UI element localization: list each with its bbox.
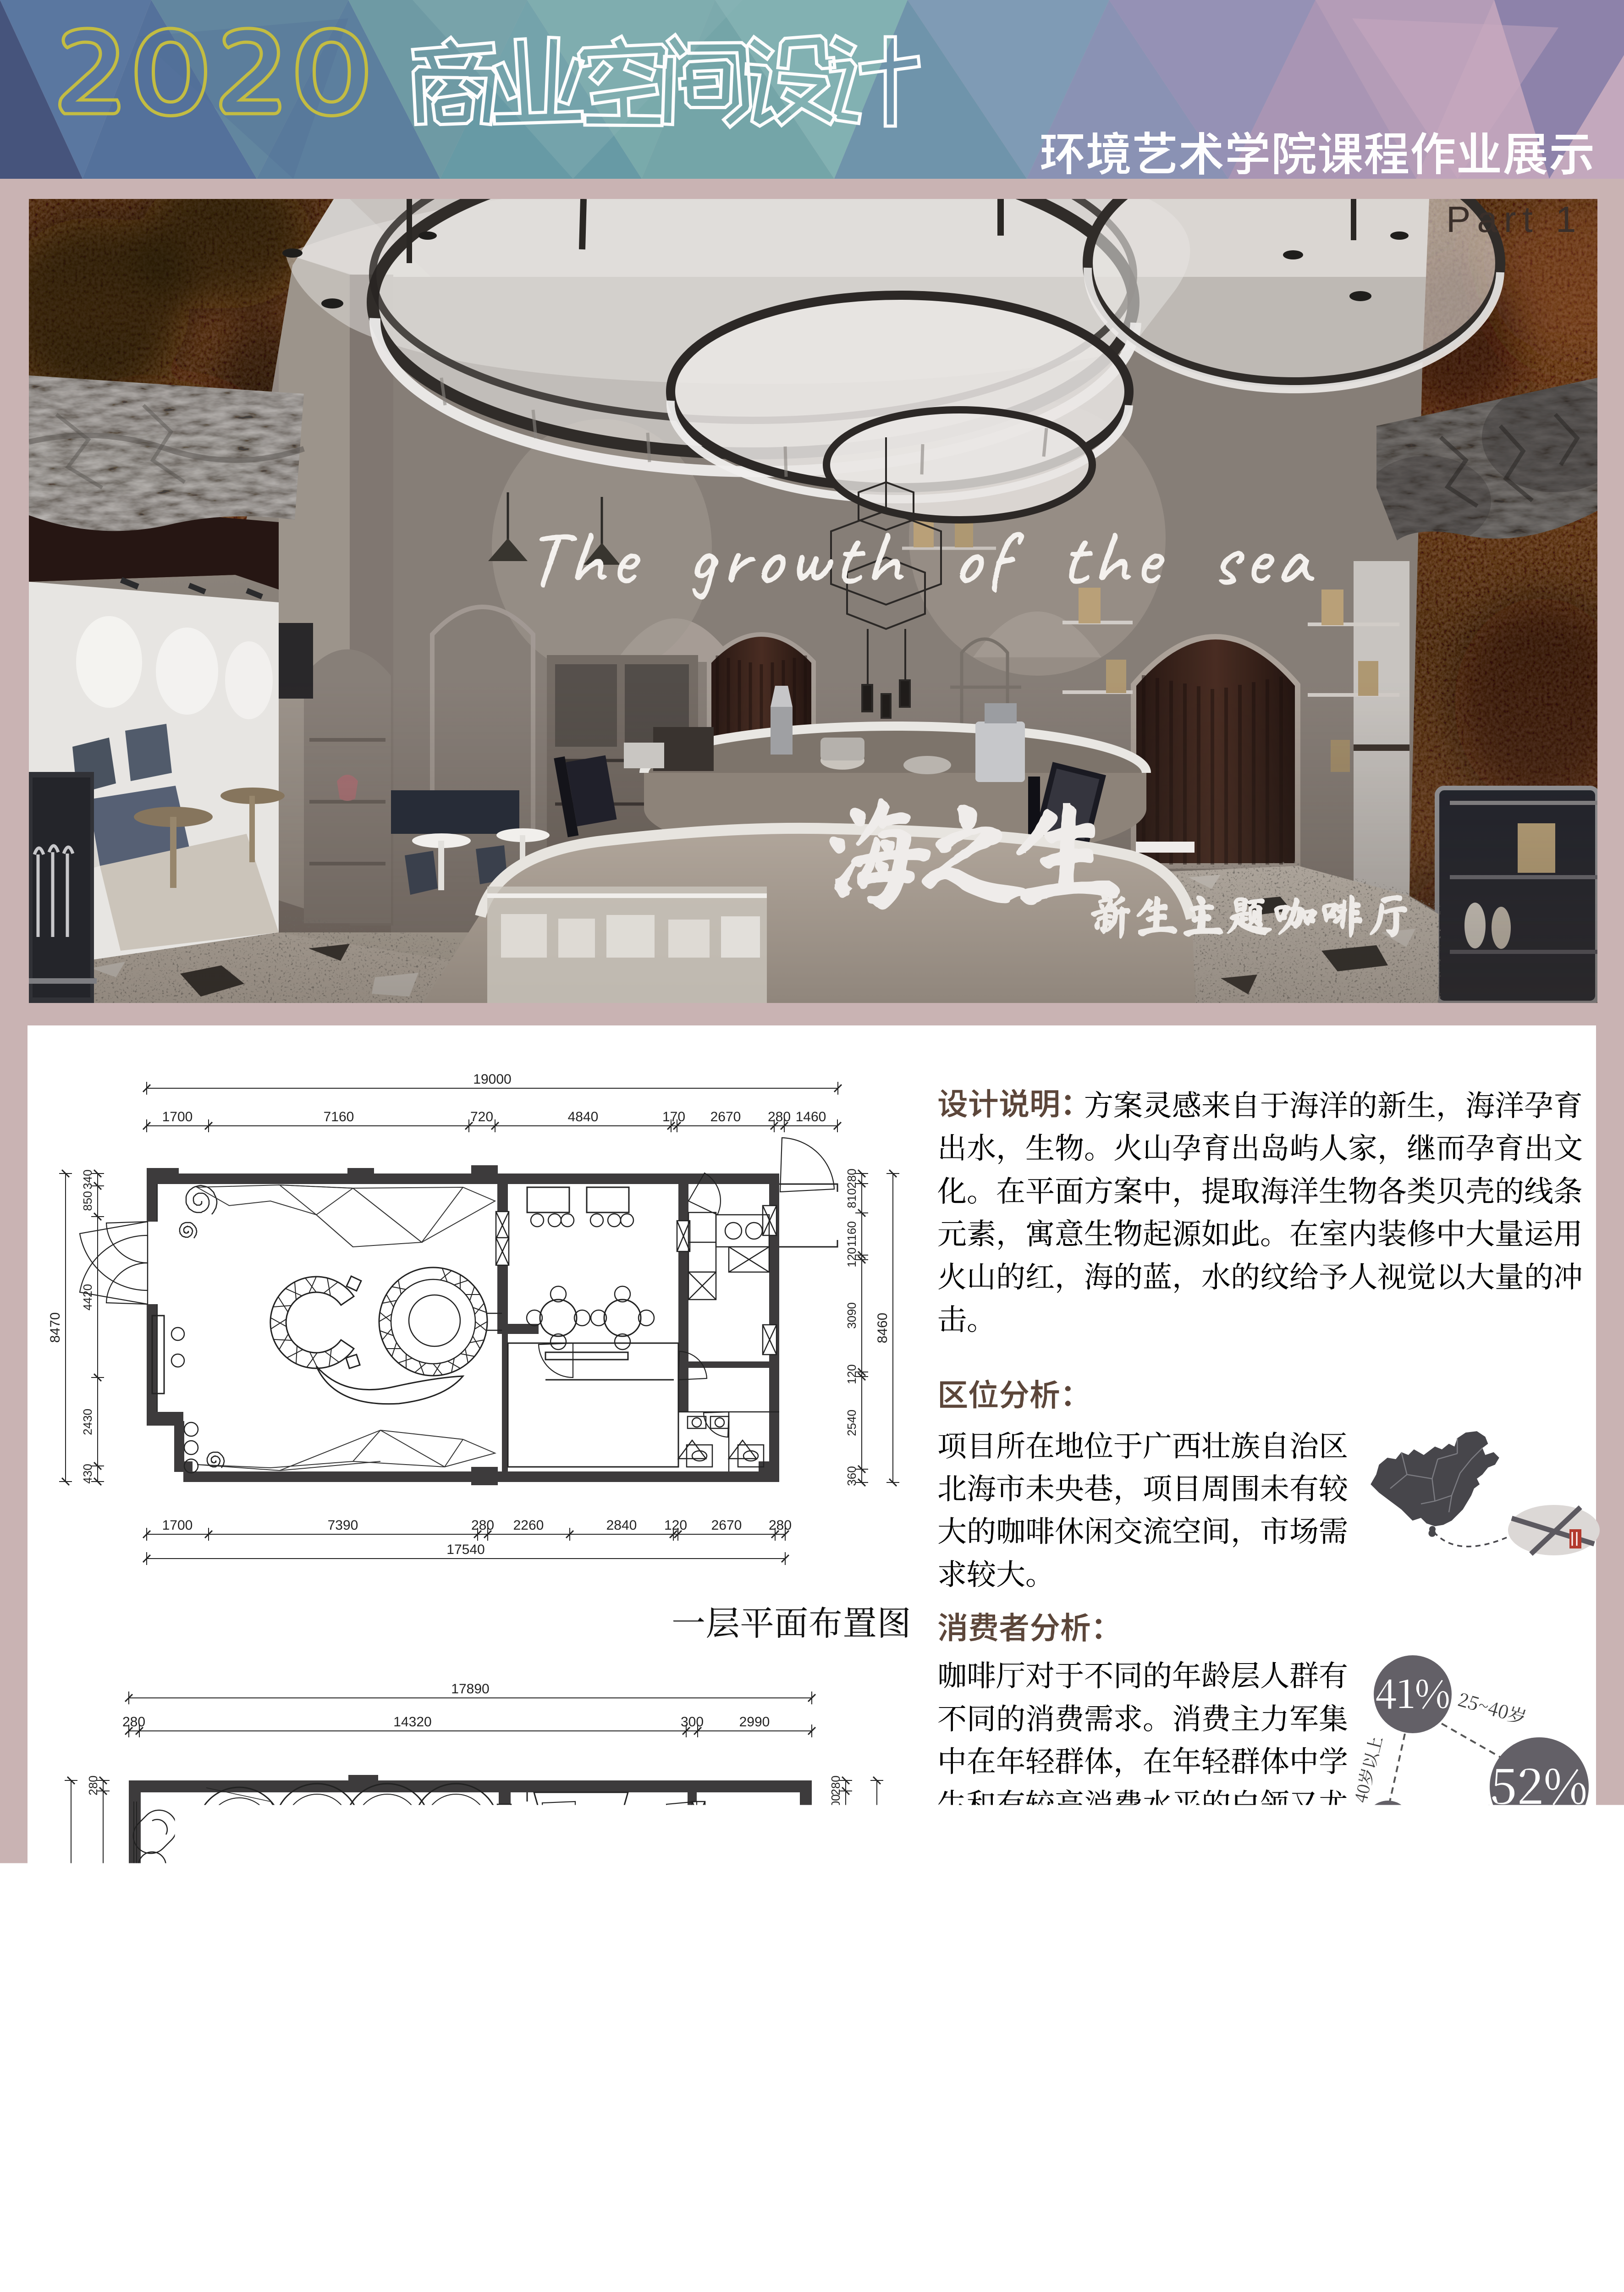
svg-text:8460: 8460: [875, 1313, 890, 1344]
svg-text:280: 280: [768, 1109, 791, 1124]
svg-text:170: 170: [662, 1109, 685, 1124]
svg-text:280: 280: [845, 1168, 859, 1188]
svg-text:720: 720: [470, 1109, 493, 1124]
svg-text:7390: 7390: [328, 1518, 358, 1533]
svg-text:17890: 17890: [451, 1681, 489, 1697]
svg-text:280: 280: [86, 1775, 100, 1795]
svg-text:1160: 1160: [845, 1221, 859, 1247]
svg-text:430: 430: [81, 1464, 94, 1483]
svg-text:8470: 8470: [48, 1312, 63, 1343]
svg-text:8460: 8460: [859, 1928, 874, 1959]
svg-text:19000: 19000: [473, 1072, 511, 1087]
svg-text:2540: 2540: [845, 1410, 859, 1436]
svg-text:4420: 4420: [81, 1284, 94, 1311]
svg-text:120: 120: [845, 1364, 859, 1384]
svg-text:7940: 7940: [634, 2138, 665, 2153]
svg-text:280: 280: [122, 2138, 145, 2153]
svg-text:300: 300: [681, 1714, 704, 1730]
svg-text:280: 280: [122, 1714, 145, 1730]
svg-text:2990: 2990: [829, 2033, 842, 2060]
svg-text:280: 280: [86, 2091, 100, 2110]
svg-text:2840: 2840: [606, 1518, 637, 1533]
svg-text:2990: 2990: [739, 1714, 770, 1730]
svg-text:1700: 1700: [162, 1518, 193, 1533]
svg-text:2260: 2260: [513, 1518, 544, 1533]
svg-text:8510: 8510: [53, 1928, 68, 1959]
svg-text:120: 120: [664, 1518, 687, 1533]
svg-text:280: 280: [471, 1518, 494, 1533]
svg-text:7950: 7950: [86, 1930, 100, 1957]
svg-text:7160: 7160: [324, 1109, 354, 1124]
svg-text:810: 810: [845, 1188, 859, 1208]
svg-text:3090: 3090: [845, 1302, 859, 1329]
svg-text:340: 340: [81, 1169, 94, 1189]
svg-text:1460: 1460: [796, 1109, 826, 1124]
svg-text:2430: 2430: [81, 1409, 94, 1435]
svg-text:280: 280: [769, 1518, 792, 1533]
svg-text:7410: 7410: [330, 2138, 361, 2153]
svg-text:14320: 14320: [393, 1714, 431, 1730]
svg-text:850: 850: [81, 1191, 94, 1211]
svg-text:2670: 2670: [710, 1109, 741, 1124]
svg-text:280: 280: [795, 2138, 818, 2153]
svg-text:1700: 1700: [162, 1109, 193, 1124]
svg-text:120: 120: [829, 1810, 842, 1829]
svg-text:17890: 17890: [451, 2174, 489, 2189]
svg-text:1700: 1700: [157, 2138, 187, 2153]
svg-text:4840: 4840: [568, 1109, 599, 1124]
svg-text:360: 360: [845, 1466, 859, 1486]
svg-text:4370: 4370: [829, 1892, 842, 1919]
svg-text:280: 280: [481, 2138, 504, 2153]
svg-text:280: 280: [829, 1775, 842, 1795]
svg-text:2670: 2670: [711, 1518, 742, 1533]
svg-text:120: 120: [845, 1247, 859, 1267]
svg-text:Part 1: Part 1: [1446, 199, 1582, 240]
svg-text:17540: 17540: [446, 1542, 484, 1557]
